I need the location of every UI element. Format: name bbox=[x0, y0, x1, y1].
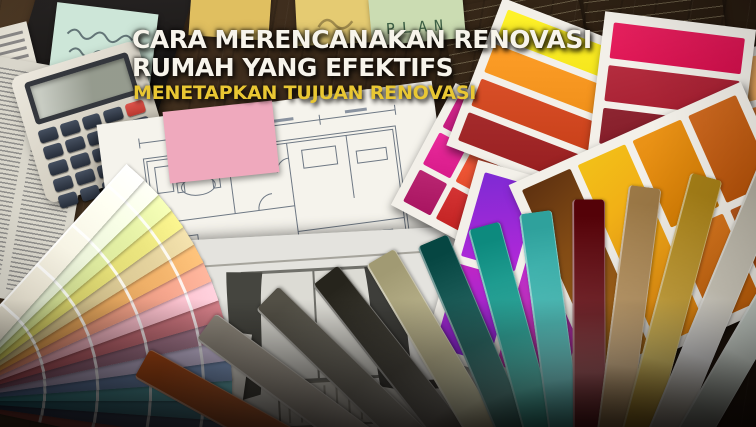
title-line-1: CARA MERENCANAKAN RENOVASI bbox=[132, 26, 592, 54]
calc-key bbox=[74, 168, 96, 186]
calc-key bbox=[59, 119, 81, 137]
calc-key bbox=[69, 152, 91, 170]
calc-key bbox=[37, 126, 59, 144]
calc-key bbox=[42, 142, 64, 160]
calc-key bbox=[79, 184, 101, 202]
white-sheet bbox=[122, 318, 252, 427]
subtitle: MENETAPKAN TUJUAN RENOVASI bbox=[133, 82, 476, 104]
headline: CARA MERENCANAKAN RENOVASI RUMAH YANG EF… bbox=[132, 26, 592, 82]
calc-key bbox=[64, 135, 86, 153]
title-line-2: RUMAH YANG EFEKTIFS bbox=[132, 54, 592, 82]
calc-key bbox=[52, 175, 74, 193]
sticky-note-pink bbox=[163, 100, 280, 183]
swatch-chip bbox=[610, 22, 745, 74]
calc-key bbox=[47, 158, 69, 176]
photo-desk-scene: PLAN bbox=[0, 0, 756, 427]
